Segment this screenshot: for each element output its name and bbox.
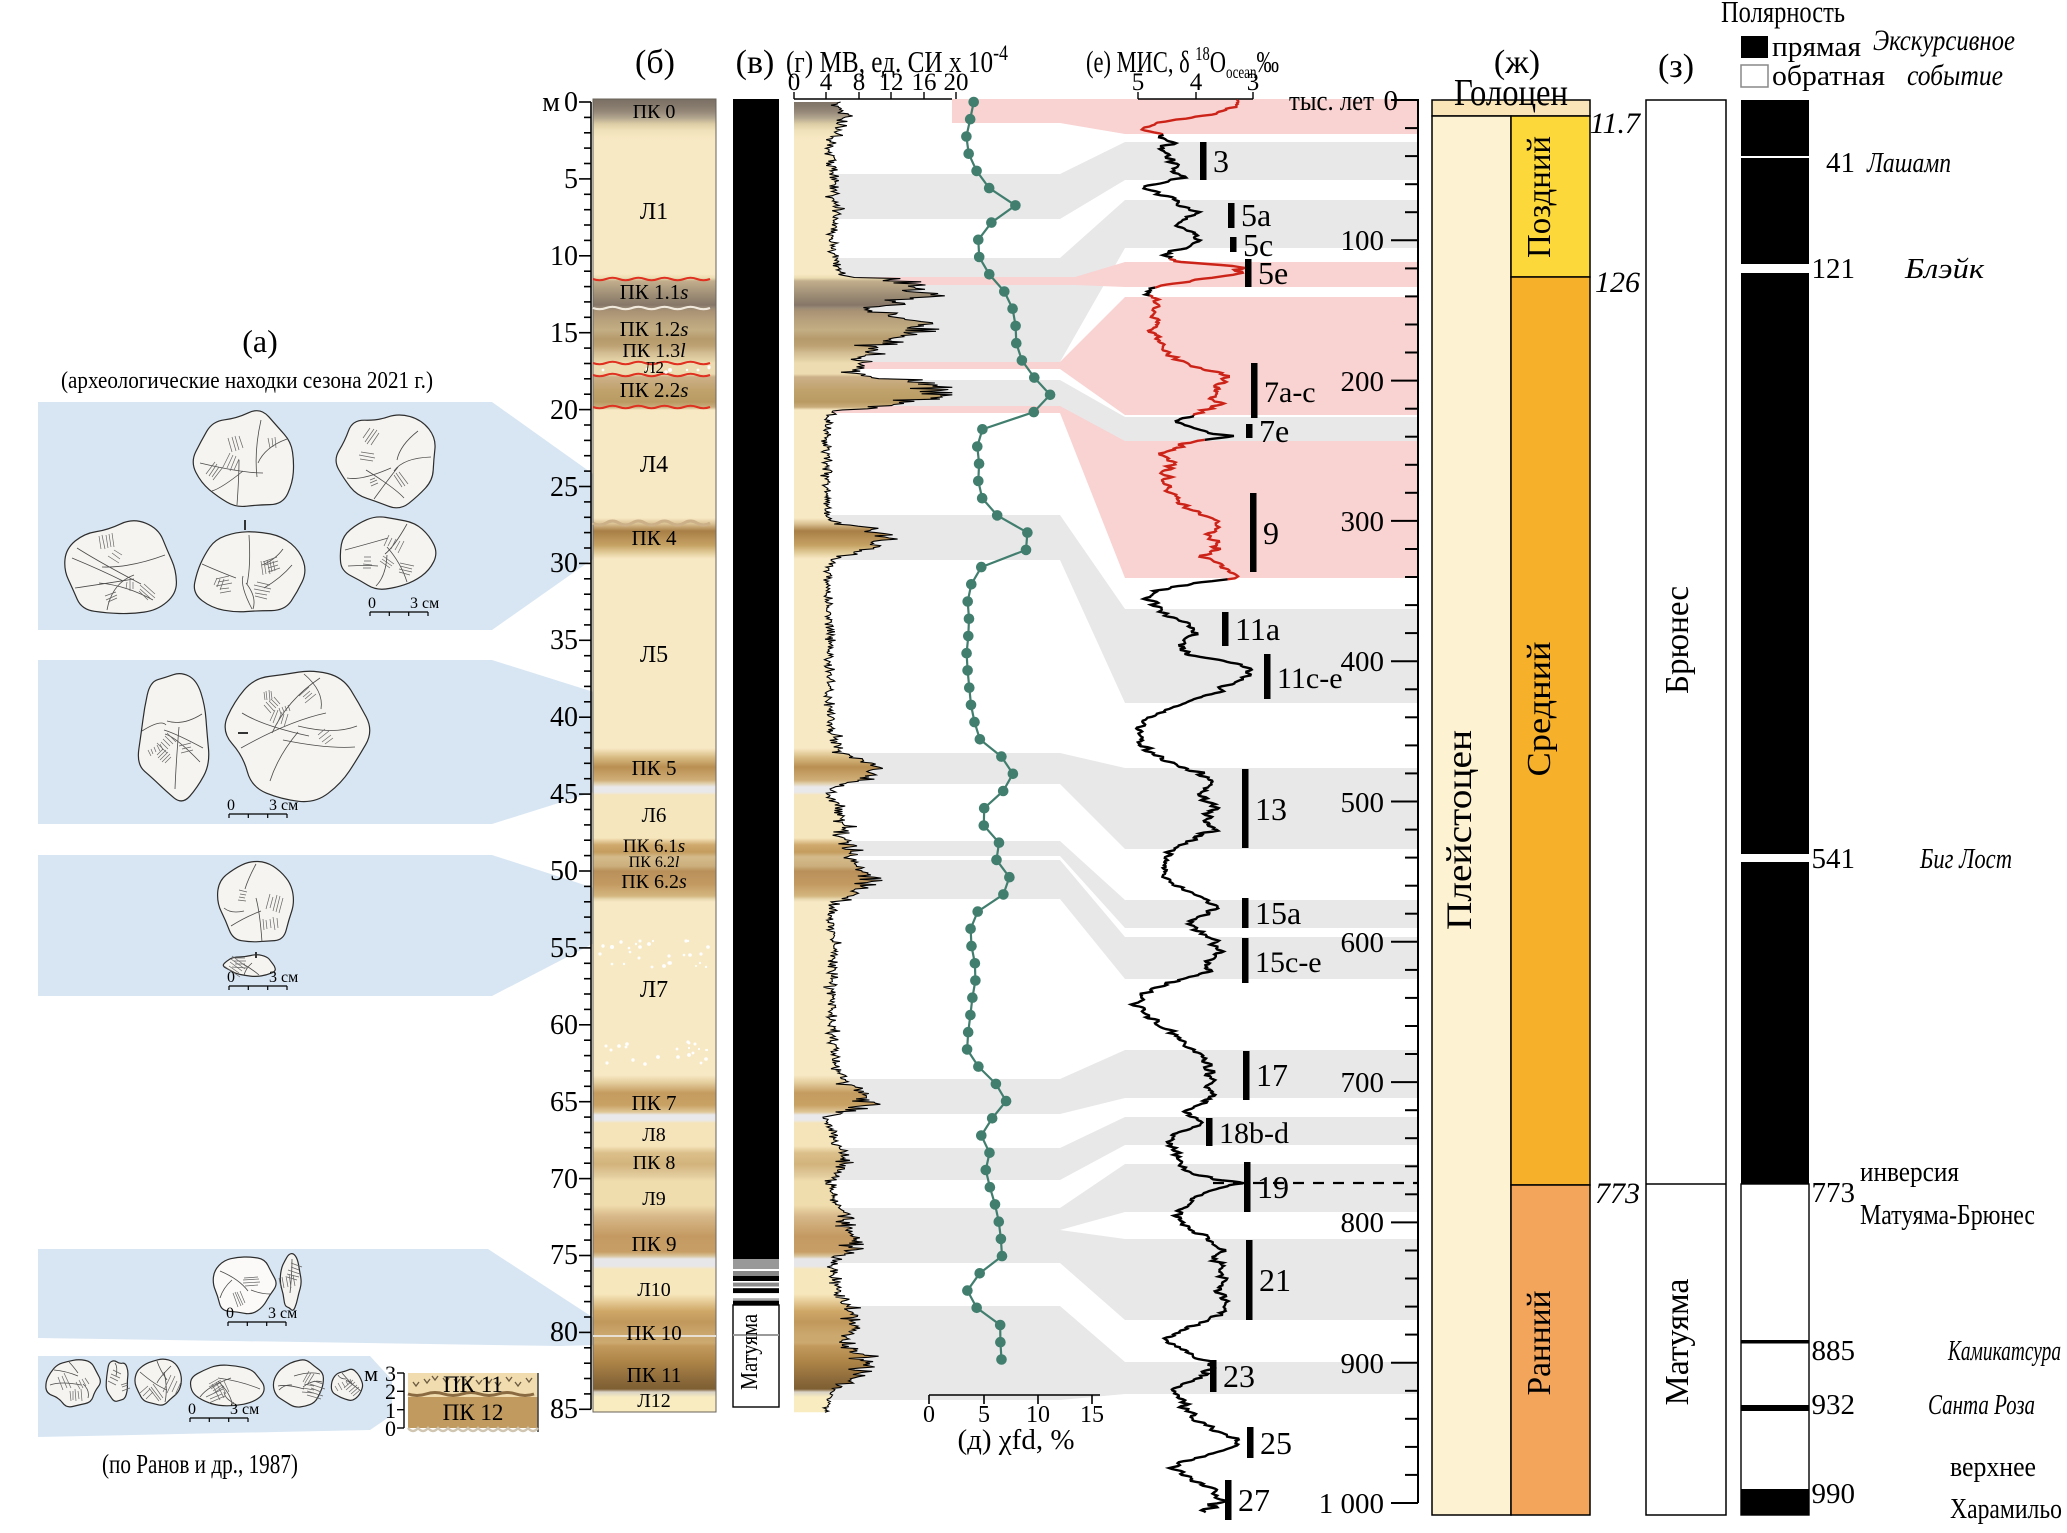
svg-text:ПК 1.2s: ПК 1.2s <box>620 317 689 341</box>
svg-text:35: 35 <box>550 625 578 656</box>
svg-text:0: 0 <box>226 1305 234 1322</box>
svg-text:ПК 7: ПК 7 <box>632 1091 677 1115</box>
svg-text:Камикатсура: Камикатсура <box>1947 1335 2061 1367</box>
svg-text:ПК 10: ПК 10 <box>626 1321 681 1345</box>
svg-text:3 см: 3 см <box>268 1305 297 1322</box>
svg-text:7a-c: 7a-c <box>1264 376 1316 409</box>
svg-text:70: 70 <box>550 1164 578 1195</box>
svg-text:11a: 11a <box>1235 611 1280 647</box>
svg-text:Л8: Л8 <box>642 1124 666 1146</box>
svg-text:ПК 5: ПК 5 <box>632 756 677 780</box>
svg-text:885: 885 <box>1812 1335 1856 1367</box>
svg-text:3 см: 3 см <box>410 595 439 612</box>
svg-text:5: 5 <box>1132 69 1145 96</box>
svg-text:0: 0 <box>227 969 235 986</box>
svg-text:Л7: Л7 <box>640 977 668 1003</box>
svg-text:0: 0 <box>385 1416 396 1441</box>
svg-text:15a: 15a <box>1255 895 1301 931</box>
svg-text:Плейстоцен: Плейстоцен <box>1439 730 1479 930</box>
svg-text:11c-e: 11c-e <box>1277 662 1343 695</box>
svg-text:55: 55 <box>550 933 578 964</box>
svg-text:Л4: Л4 <box>640 452 668 478</box>
svg-text:Матуяма-Брюнес: Матуяма-Брюнес <box>1860 1199 2035 1231</box>
svg-text:500: 500 <box>1341 787 1385 819</box>
svg-text:Л5: Л5 <box>640 642 668 668</box>
svg-text:ПК 8: ПК 8 <box>633 1152 676 1174</box>
svg-text:40: 40 <box>550 702 578 733</box>
svg-text:0: 0 <box>227 797 235 814</box>
svg-text:Экскурсивное: Экскурсивное <box>1873 24 2015 57</box>
svg-text:200: 200 <box>1341 366 1385 398</box>
svg-text:ПК 0: ПК 0 <box>633 101 676 123</box>
svg-text:ПК 6.2l: ПК 6.2l <box>629 854 680 871</box>
svg-text:(по Ранов и др., 1987): (по Ранов и др., 1987) <box>102 1449 298 1479</box>
svg-text:ПК 11: ПК 11 <box>443 1372 503 1397</box>
svg-text:932: 932 <box>1812 1389 1856 1421</box>
svg-text:Л10: Л10 <box>637 1279 671 1301</box>
svg-text:773: 773 <box>1812 1177 1856 1209</box>
svg-text:100: 100 <box>1341 225 1385 257</box>
svg-text:30: 30 <box>550 548 578 579</box>
svg-text:8: 8 <box>853 69 866 96</box>
svg-text:Брюнес: Брюнес <box>737 646 763 714</box>
svg-text:Л9: Л9 <box>642 1188 666 1210</box>
svg-text:(в): (в) <box>736 44 775 81</box>
svg-text:700: 700 <box>1341 1067 1385 1099</box>
svg-text:11.7: 11.7 <box>1590 107 1642 140</box>
svg-text:25: 25 <box>550 472 578 503</box>
svg-text:60: 60 <box>550 1010 578 1041</box>
svg-text:13: 13 <box>1255 791 1287 827</box>
svg-text:50: 50 <box>550 856 578 887</box>
svg-text:инверсия: инверсия <box>1860 1156 1959 1188</box>
svg-text:17: 17 <box>1256 1057 1288 1093</box>
svg-text:126: 126 <box>1595 266 1640 299</box>
svg-text:0: 0 <box>1384 85 1399 117</box>
svg-text:800: 800 <box>1341 1207 1385 1239</box>
svg-text:Биг Лост: Биг Лост <box>1919 843 2012 875</box>
svg-text:0: 0 <box>788 69 801 96</box>
svg-text:Л1: Л1 <box>640 199 668 225</box>
svg-text:121: 121 <box>1812 253 1856 285</box>
svg-text:0: 0 <box>923 1402 935 1428</box>
svg-text:20: 20 <box>550 395 578 426</box>
svg-text:5: 5 <box>564 164 578 195</box>
svg-text:15: 15 <box>1080 1402 1104 1428</box>
svg-text:23: 23 <box>1223 1358 1255 1394</box>
svg-text:3: 3 <box>1213 143 1229 179</box>
svg-text:Лашамп: Лашамп <box>1866 147 1951 179</box>
svg-text:ПК 4: ПК 4 <box>632 526 677 550</box>
svg-text:событие: событие <box>1907 59 2003 92</box>
svg-text:25: 25 <box>1260 1425 1292 1461</box>
svg-text:27: 27 <box>1238 1482 1270 1518</box>
svg-text:21: 21 <box>1259 1262 1291 1298</box>
svg-text:Л12: Л12 <box>637 1390 671 1412</box>
svg-text:Блэйк: Блэйк <box>1904 253 1985 285</box>
svg-text:18b-d: 18b-d <box>1219 1117 1289 1150</box>
svg-text:(з): (з) <box>1658 48 1694 85</box>
svg-text:(д) χfd, %: (д) χfd, % <box>957 1424 1074 1456</box>
svg-text:Брюнес: Брюнес <box>1659 586 1696 694</box>
svg-text:верхнее: верхнее <box>1950 1451 2036 1483</box>
svg-text:тыс. лет: тыс. лет <box>1289 85 1374 117</box>
svg-text:0: 0 <box>368 595 376 612</box>
svg-text:80: 80 <box>550 1317 578 1348</box>
svg-text:Голоцен: Голоцен <box>1454 72 1568 114</box>
svg-text:Л6: Л6 <box>642 803 667 827</box>
svg-text:(археологические находки сезон: (археологические находки сезона 2021 г.) <box>61 368 433 394</box>
svg-text:м: м <box>542 87 560 118</box>
svg-text:Полярность: Полярность <box>1721 0 1845 29</box>
svg-text:10: 10 <box>550 241 578 272</box>
svg-text:Поздний: Поздний <box>1521 136 1558 258</box>
svg-text:5e: 5e <box>1258 255 1288 291</box>
svg-text:15c-e: 15c-e <box>1255 946 1322 979</box>
svg-text:4: 4 <box>1190 69 1203 96</box>
svg-text:Средний: Средний <box>1521 642 1558 777</box>
svg-text:7e: 7e <box>1259 413 1289 449</box>
svg-text:3 см: 3 см <box>269 969 298 986</box>
svg-text:0: 0 <box>188 1401 196 1418</box>
svg-text:19: 19 <box>1257 1169 1289 1205</box>
svg-text:12: 12 <box>879 69 904 96</box>
svg-text:Харамильо: Харамильо <box>1950 1493 2062 1525</box>
svg-text:600: 600 <box>1341 927 1385 959</box>
svg-text:541: 541 <box>1812 843 1856 875</box>
svg-text:3: 3 <box>1247 69 1260 96</box>
svg-text:773: 773 <box>1595 1177 1640 1210</box>
svg-text:ПК 12: ПК 12 <box>443 1400 504 1425</box>
svg-text:обратная: обратная <box>1772 60 1885 92</box>
svg-text:400: 400 <box>1341 646 1385 678</box>
svg-text:ПК 11: ПК 11 <box>627 1363 682 1387</box>
svg-text:Матуяма: Матуяма <box>737 1314 763 1390</box>
svg-text:16: 16 <box>912 69 937 96</box>
svg-text:15: 15 <box>550 318 578 349</box>
svg-text:Санта Роза: Санта Роза <box>1928 1389 2035 1421</box>
svg-text:прямая: прямая <box>1772 31 1861 63</box>
svg-text:ПК 2.2s: ПК 2.2s <box>620 378 689 402</box>
svg-text:9: 9 <box>1263 515 1279 551</box>
svg-text:ПК 9: ПК 9 <box>632 1232 677 1256</box>
svg-text:Л2: Л2 <box>644 358 664 377</box>
svg-text:20: 20 <box>944 69 969 96</box>
svg-text:(б): (б) <box>635 44 675 81</box>
svg-text:65: 65 <box>550 1087 578 1118</box>
svg-text:0: 0 <box>564 87 578 118</box>
svg-text:300: 300 <box>1341 506 1385 538</box>
svg-text:990: 990 <box>1812 1478 1856 1510</box>
svg-text:85: 85 <box>550 1394 578 1425</box>
svg-text:ПК 1.1s: ПК 1.1s <box>620 280 689 304</box>
svg-text:ПК 6.2s: ПК 6.2s <box>621 871 687 893</box>
svg-text:4: 4 <box>820 69 833 96</box>
svg-text:41: 41 <box>1826 147 1855 179</box>
svg-text:Ранний: Ранний <box>1521 1291 1558 1396</box>
svg-text:75: 75 <box>550 1240 578 1271</box>
svg-text:1 000: 1 000 <box>1319 1488 1384 1520</box>
svg-text:45: 45 <box>550 779 578 810</box>
svg-text:3 см: 3 см <box>269 797 298 814</box>
svg-text:3 см: 3 см <box>230 1401 259 1418</box>
svg-text:(а): (а) <box>242 323 278 359</box>
svg-text:м: м <box>364 1361 378 1386</box>
svg-text:900: 900 <box>1341 1348 1385 1380</box>
svg-text:Матуяма: Матуяма <box>1659 1279 1696 1406</box>
